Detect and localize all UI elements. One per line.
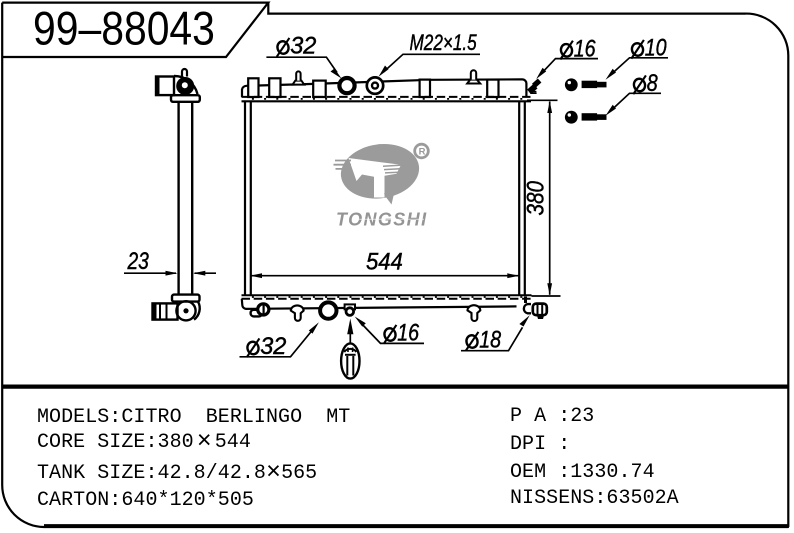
svg-text:MODELS:CITRO BERLINGO MT: MODELS:CITRO BERLINGO MT	[37, 406, 350, 429]
svg-text:380: 380	[522, 181, 549, 216]
svg-text:OEM :1330.74: OEM :1330.74	[510, 461, 655, 484]
svg-text:NISSENS:63502A: NISSENS:63502A	[510, 487, 679, 510]
svg-text:32: 32	[290, 32, 316, 59]
svg-text:M22×1.5: M22×1.5	[410, 31, 478, 56]
svg-text:CORE SIZE:380×544: CORE SIZE:380×544	[37, 427, 251, 456]
svg-text:CARTON:640*120*505: CARTON:640*120*505	[37, 489, 254, 512]
svg-text:DPI :: DPI :	[510, 433, 570, 456]
svg-text:P A :23: P A :23	[510, 405, 594, 428]
svg-text:16: 16	[397, 319, 420, 346]
svg-text:TANK SIZE:42.8/42.8×565: TANK SIZE:42.8/42.8×565	[37, 458, 317, 487]
svg-text:99–88043: 99–88043	[33, 3, 215, 55]
svg-text:8: 8	[647, 69, 659, 96]
svg-text:R: R	[419, 146, 426, 157]
svg-text:18: 18	[479, 326, 502, 353]
svg-text:544: 544	[366, 248, 403, 275]
svg-text:10: 10	[645, 34, 668, 61]
svg-text:16: 16	[574, 34, 597, 61]
svg-text:23: 23	[127, 247, 149, 275]
